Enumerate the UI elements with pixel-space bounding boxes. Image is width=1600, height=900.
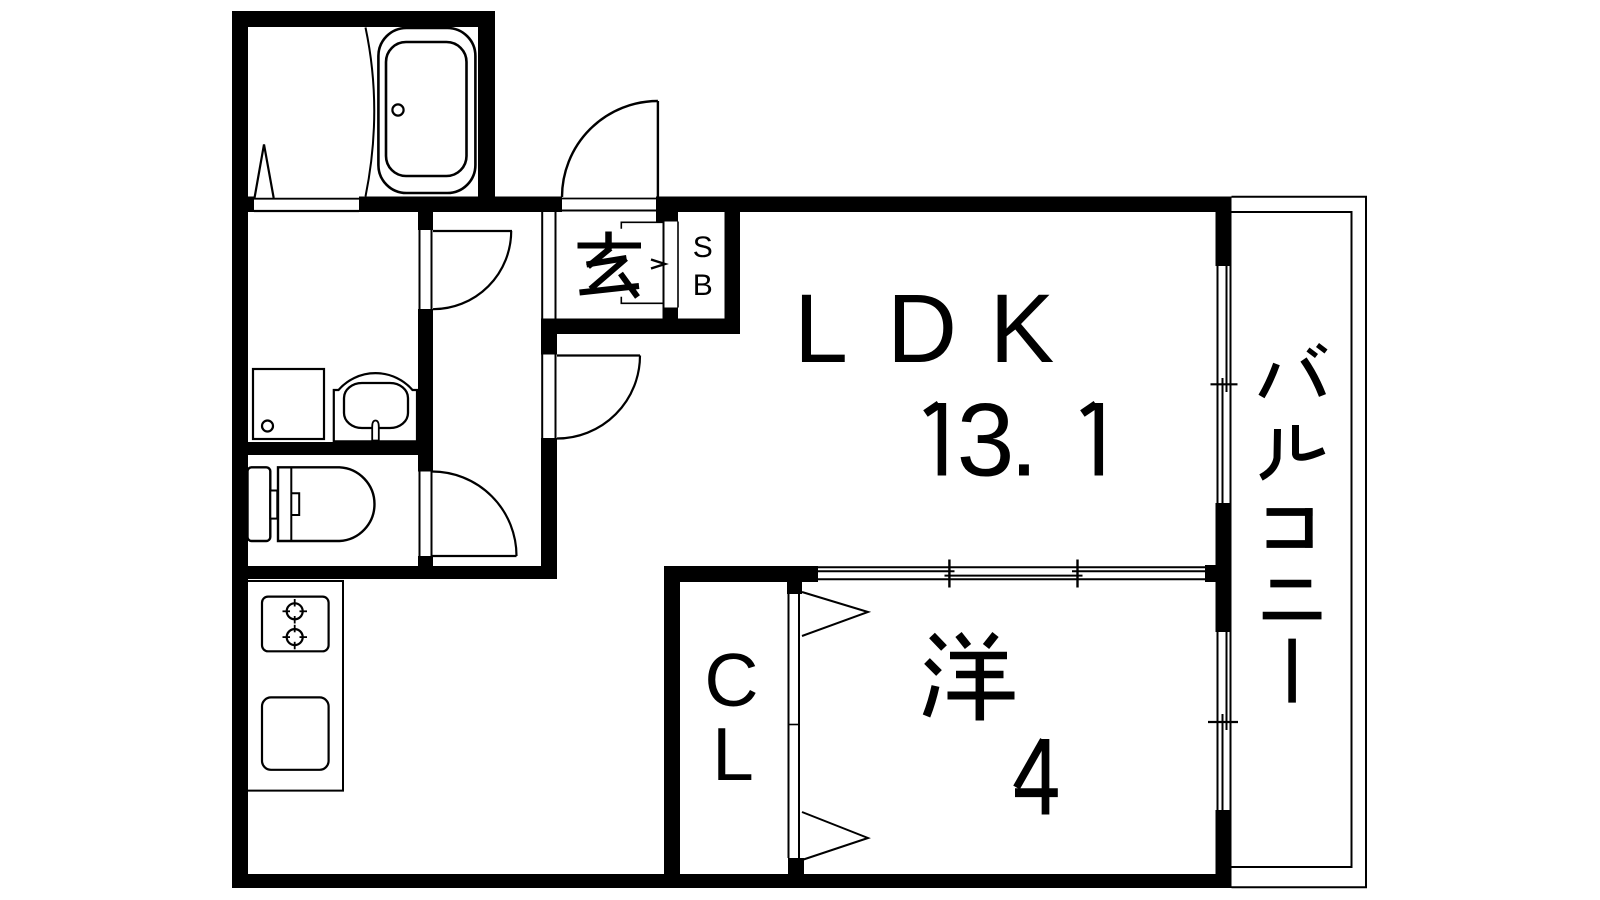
svg-text:L: L xyxy=(712,712,754,796)
svg-text:.: . xyxy=(1010,383,1039,499)
svg-text:D: D xyxy=(887,274,957,383)
svg-text:3: 3 xyxy=(957,383,1015,499)
svg-text:K: K xyxy=(990,274,1055,383)
svg-text:B: B xyxy=(693,269,713,302)
svg-text:S: S xyxy=(693,231,713,264)
svg-text:L: L xyxy=(794,274,848,383)
svg-text:C: C xyxy=(704,638,758,722)
